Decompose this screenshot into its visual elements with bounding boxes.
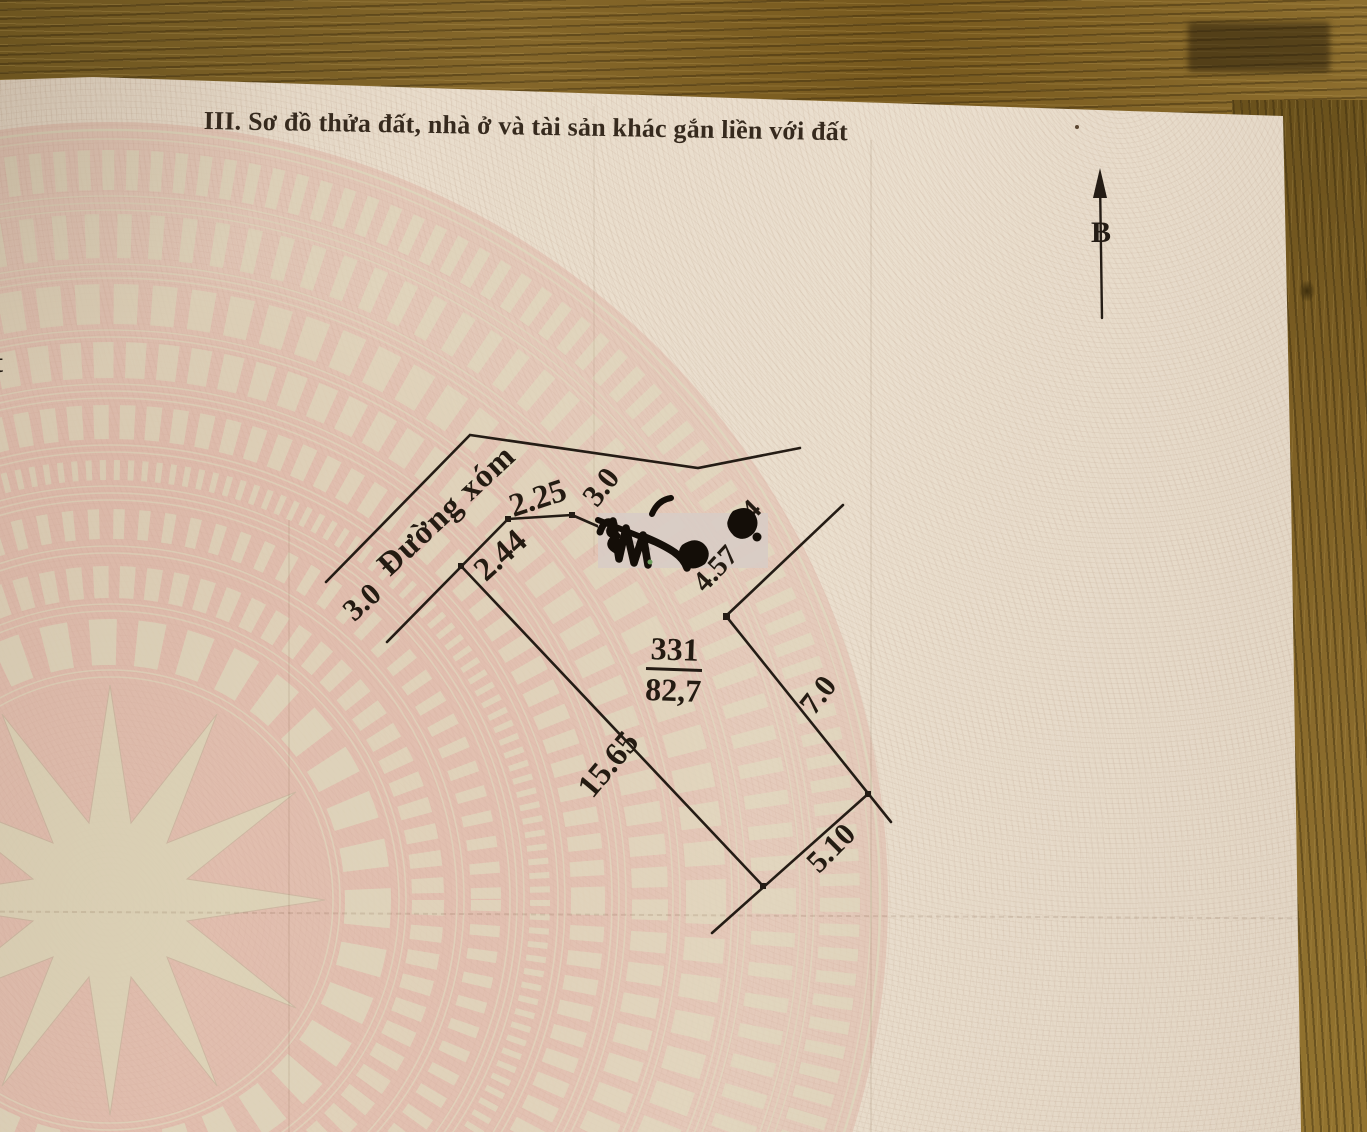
scribble-dot	[753, 533, 762, 542]
certificate-photo: III. Sơ đồ thửa đất, nhà ở và tài sản kh…	[0, 0, 1367, 1132]
scribble-loop	[652, 498, 671, 514]
certificate-paper: III. Sơ đồ thửa đất, nhà ở và tài sản kh…	[0, 0, 1367, 1132]
wood-knot	[1299, 280, 1315, 302]
scribble-blob-over-44	[727, 508, 757, 539]
wood-dark-smudge	[1188, 22, 1330, 72]
green-speck	[648, 560, 653, 565]
ink-scribbles	[0, 0, 1367, 1132]
